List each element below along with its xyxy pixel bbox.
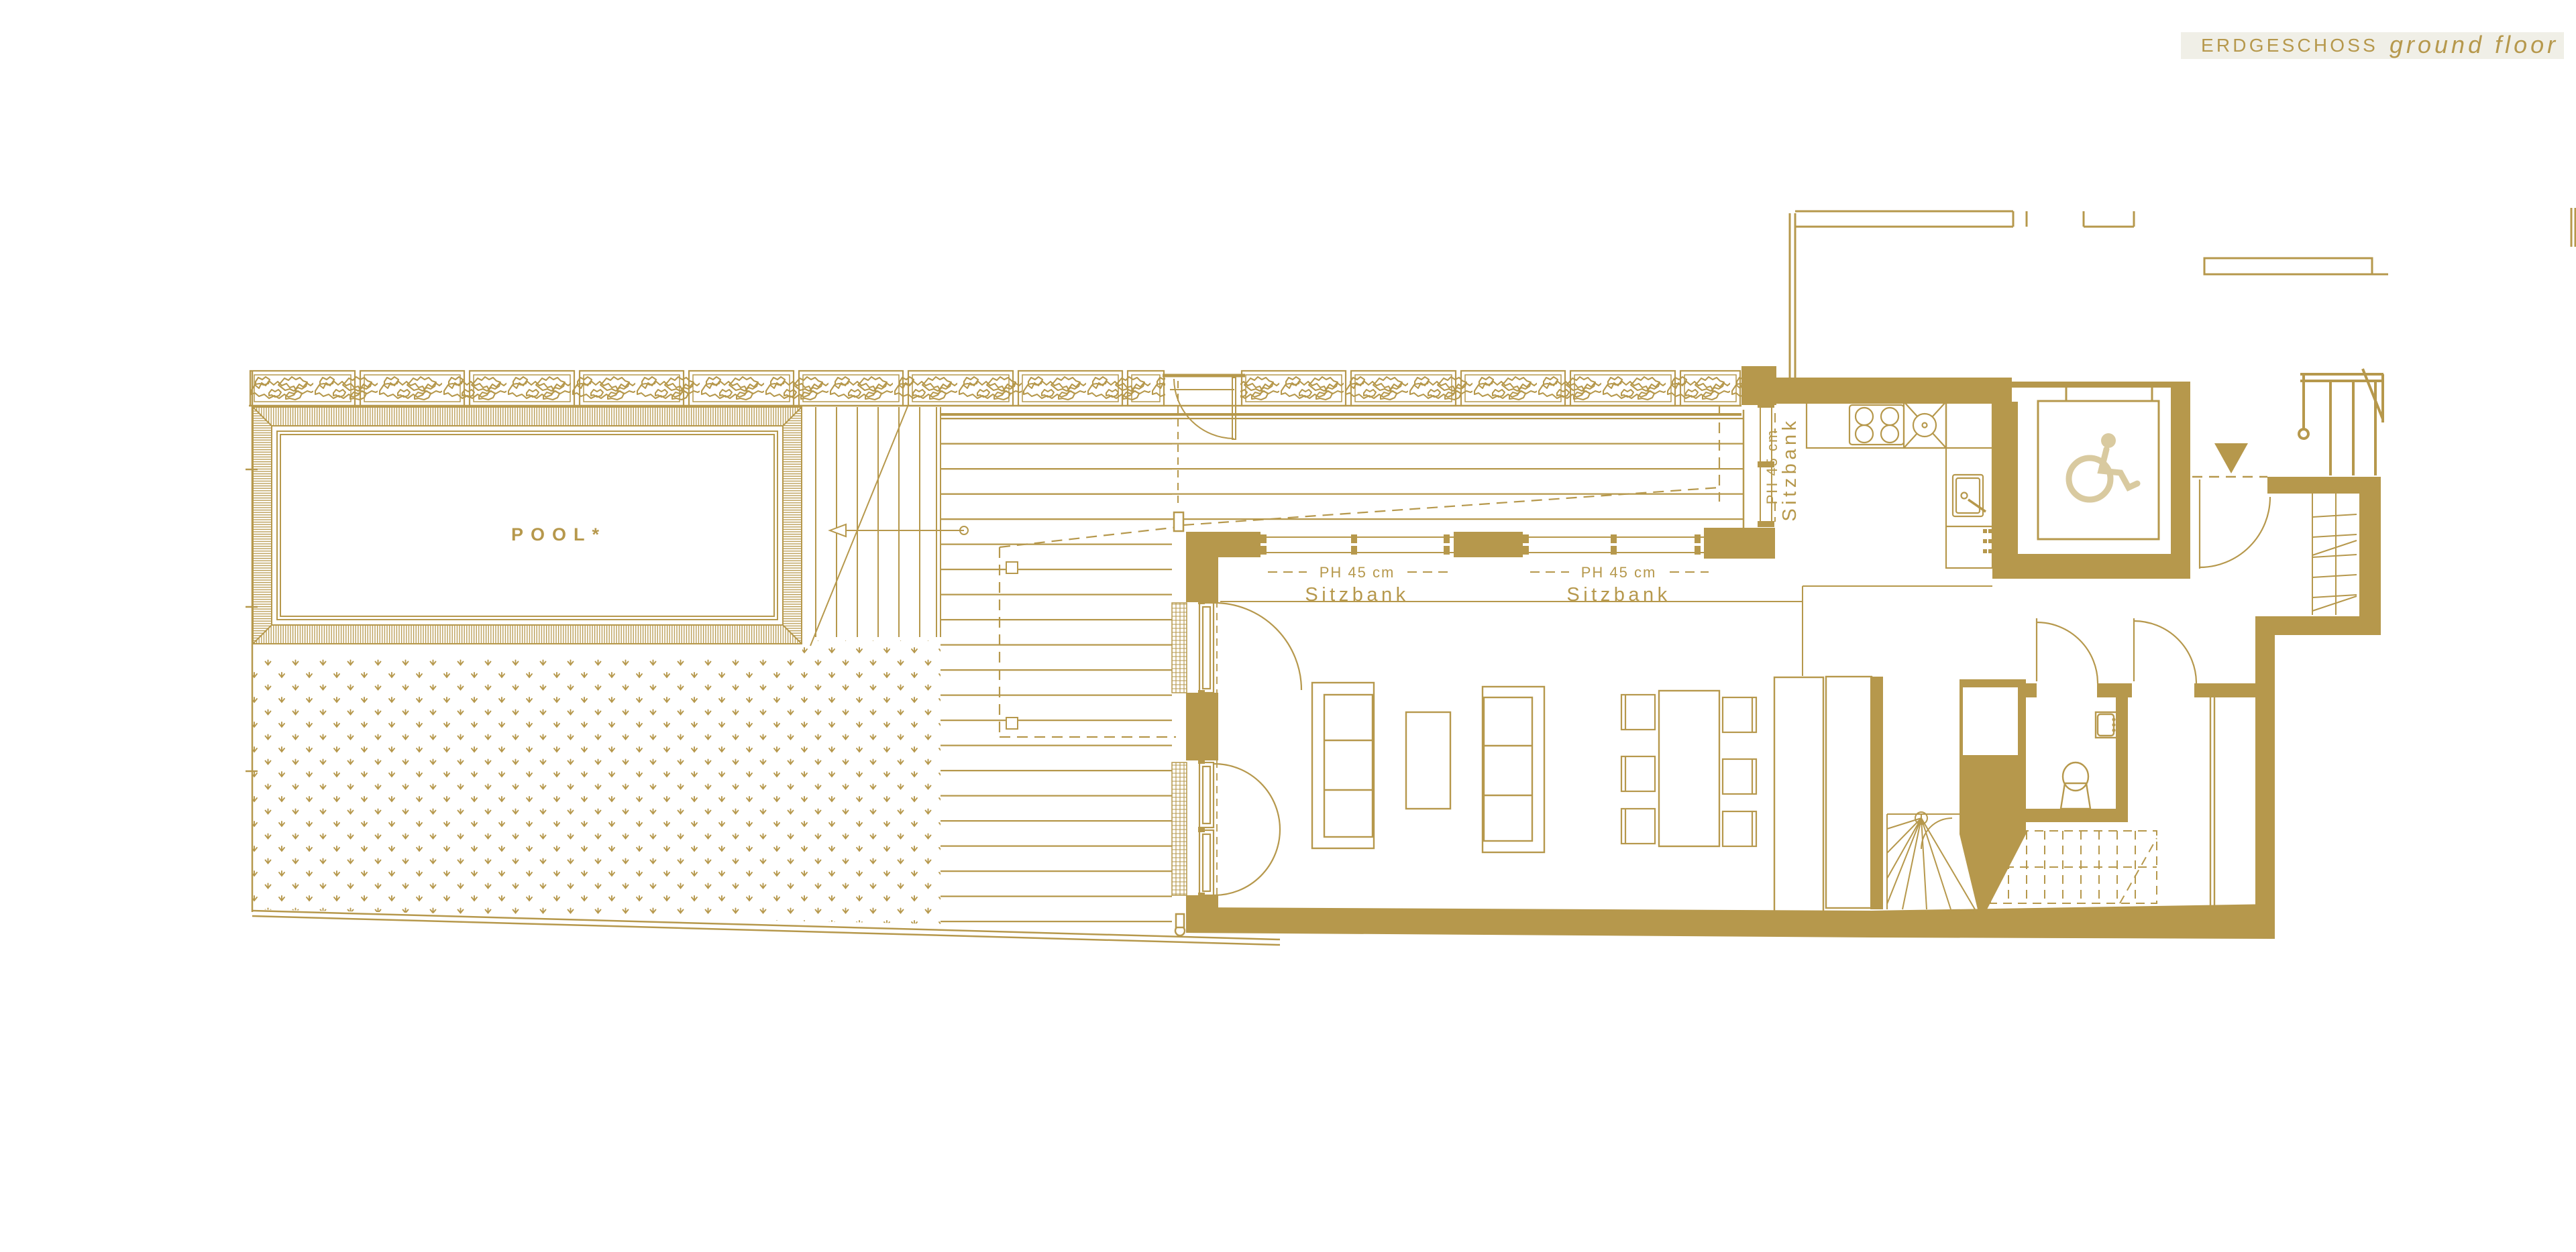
svg-text:PH 45 cm: PH 45 cm [1320,564,1395,581]
svg-text:Sitzbank: Sitzbank [1779,417,1801,521]
svg-text:ground floor: ground floor [2390,31,2559,58]
svg-text:PH 45 cm: PH 45 cm [1764,429,1780,505]
svg-text:ERDGESCHOSS: ERDGESCHOSS [2201,35,2378,56]
svg-text:PH 45 cm: PH 45 cm [1581,564,1657,581]
svg-text:POOL*: POOL* [511,524,606,545]
svg-text:Sitzbank: Sitzbank [1566,584,1670,606]
svg-text:Sitzbank: Sitzbank [1305,584,1409,606]
